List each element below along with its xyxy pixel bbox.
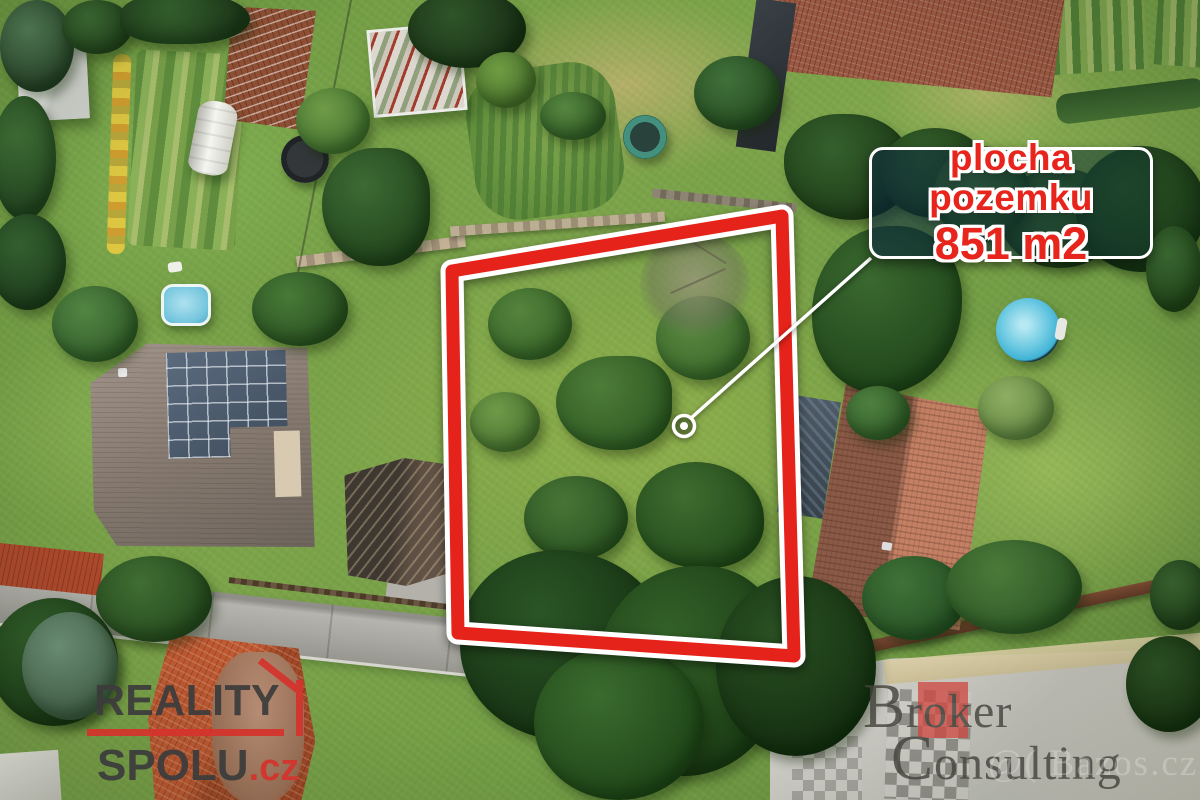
area-label-value: 851 m2 <box>935 220 1088 269</box>
agency-name-bottom: SPOLU.cz <box>97 741 299 791</box>
area-label-box: plocha pozemku 851 m2 <box>869 147 1153 259</box>
area-label-title: plocha pozemku <box>872 138 1150 218</box>
aerial-photo-listing: plocha pozemku 851 m2 REALITY SPOLU.cz B… <box>0 0 1200 800</box>
agency-tld: .cz <box>249 747 300 789</box>
agency-name-top: REALITY <box>94 676 280 726</box>
agency-red-bar <box>87 729 284 736</box>
bazos-watermark: @( Bazos.cz <box>988 742 1198 785</box>
reality-spolu-logo: REALITY SPOLU.cz <box>84 676 324 796</box>
agency-roof-post <box>296 680 303 736</box>
